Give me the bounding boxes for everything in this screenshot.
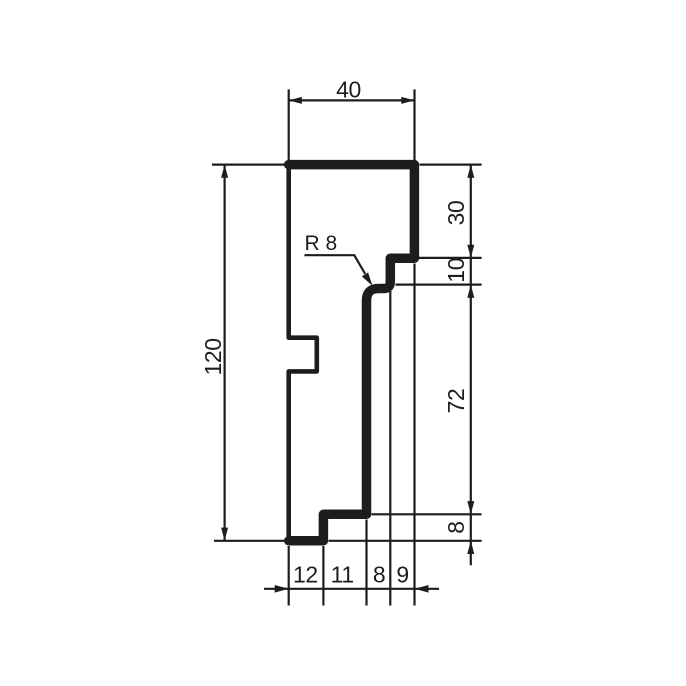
svg-text:12: 12 (293, 561, 318, 587)
svg-text:9: 9 (396, 561, 408, 587)
svg-text:11: 11 (331, 561, 354, 587)
svg-text:40: 40 (336, 77, 361, 103)
svg-text:120: 120 (200, 338, 226, 375)
svg-text:72: 72 (443, 389, 469, 414)
svg-text:R 8: R 8 (305, 232, 338, 255)
svg-text:10: 10 (443, 258, 469, 283)
svg-text:8: 8 (443, 521, 469, 533)
svg-text:30: 30 (443, 201, 469, 226)
svg-text:8: 8 (373, 561, 385, 587)
